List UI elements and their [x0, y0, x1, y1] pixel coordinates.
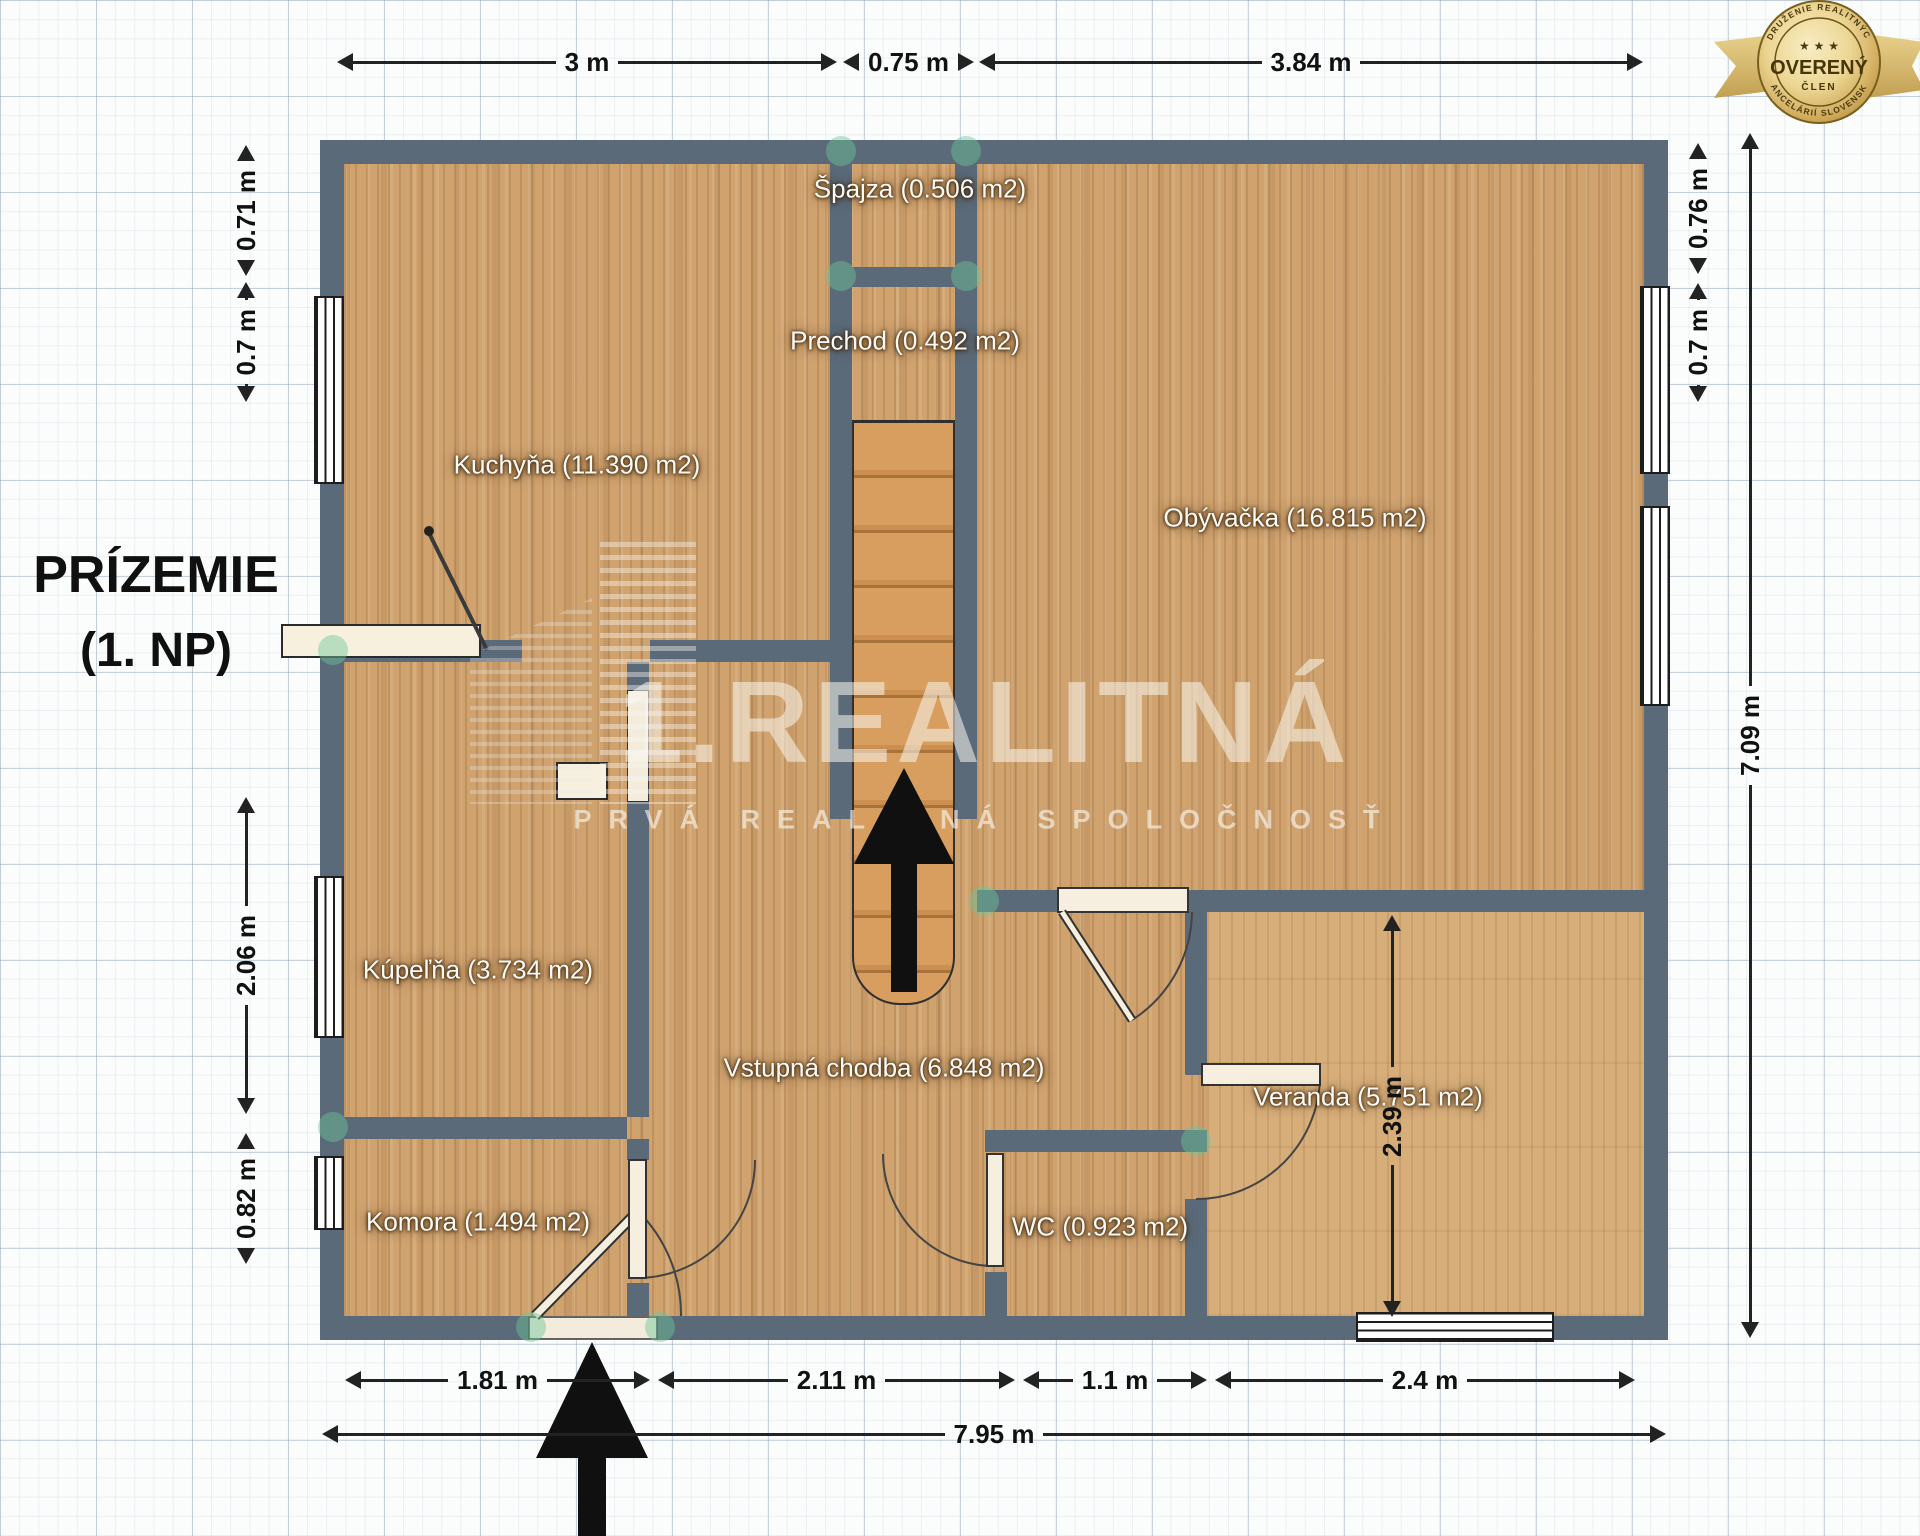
- junction-marker: [826, 261, 856, 291]
- junction-marker: [516, 1312, 546, 1342]
- dim-bottom-24m: 2.4 m: [1215, 1362, 1635, 1398]
- room-label-vstupna-chodba: Vstupná chodba (6.848 m2): [724, 1053, 1045, 1084]
- dim-right-239m: 2.39 m: [1372, 915, 1412, 1317]
- dim-bottom-181m: 1.81 m: [345, 1362, 650, 1398]
- junction-marker: [1181, 1126, 1211, 1156]
- junction-marker: [645, 1312, 675, 1342]
- dim-top-384m: 3.84 m: [979, 44, 1643, 80]
- junction-marker: [318, 1112, 348, 1142]
- komora-door-arc: [637, 1160, 755, 1278]
- stairs-direction-arrow: [891, 852, 917, 992]
- floor-title-line2: (1. NP): [22, 623, 290, 678]
- entrance-threshold: [529, 1317, 657, 1339]
- kitchen-door-hinge: [424, 526, 434, 536]
- badge-title: OVERENÝ: [1770, 55, 1868, 79]
- junction-marker: [951, 136, 981, 166]
- entrance-arrow: [578, 1452, 606, 1536]
- room-label-obyvacka: Obývačka (16.815 m2): [1163, 503, 1426, 534]
- dim-top-3m: 3 m: [337, 44, 837, 80]
- room-label-komora: Komora (1.494 m2): [366, 1207, 590, 1238]
- dim-left-07m: 0.7 m: [226, 282, 266, 402]
- wc-door-leaf: [987, 1154, 1003, 1266]
- junction-marker: [951, 261, 981, 291]
- livingroom-door-arc: [1132, 912, 1192, 1020]
- floor-plan-canvas: 1.REALITNÁ PRVÁ REALITNÁ SPOLOČNOSŤ Kuch…: [0, 0, 1920, 1536]
- room-label-prechod: Prechod (0.492 m2): [790, 326, 1020, 357]
- komora-door-leaf: [629, 1160, 646, 1278]
- dim-left-206m: 2.06 m: [226, 797, 266, 1114]
- room-label-kupelna: Kúpeľňa (3.734 m2): [363, 955, 593, 986]
- dim-bottom-11m: 1.1 m: [1023, 1362, 1207, 1398]
- room-label-kuchyna: Kuchyňa (11.390 m2): [454, 450, 701, 481]
- dim-top-075m: 0.75 m: [843, 44, 973, 80]
- floor-title: PRÍZEMIE (1. NP): [22, 545, 290, 678]
- watermark-brand: 1.REALITNÁ: [618, 655, 1351, 789]
- dim-bottom-795m: 7.95 m: [322, 1416, 1666, 1452]
- wc-door-arc: [883, 1154, 995, 1266]
- dim-bottom-211m: 2.11 m: [658, 1362, 1015, 1398]
- livingroom-door-frame: [1058, 888, 1188, 912]
- floor-title-line1: PRÍZEMIE: [22, 545, 290, 605]
- verified-member-badge: ZDRUŽENIE REALITNÝCH KANCELÁRIÍ SLOVENSK…: [1692, 0, 1920, 166]
- room-label-spajza: Špajza (0.506 m2): [814, 174, 1026, 205]
- watermark-tagline: PRVÁ REALITNÁ SPOLOČNOSŤ: [573, 805, 1396, 836]
- junction-marker: [969, 886, 999, 916]
- stairs-direction-arrow-head: [854, 768, 954, 864]
- junction-marker: [318, 635, 348, 665]
- dim-right-07m: 0.7 m: [1678, 283, 1718, 402]
- dim-right-709m: 7.09 m: [1730, 133, 1770, 1338]
- dim-left-071m: 0.71 m: [226, 145, 266, 270]
- badge-stars: ★ ★ ★: [1799, 39, 1839, 53]
- junction-marker: [826, 136, 856, 166]
- room-label-wc: WC (0.923 m2): [1012, 1212, 1188, 1243]
- dim-left-082m: 0.82 m: [226, 1133, 266, 1257]
- room-label-veranda: Veranda (5.751 m2): [1253, 1082, 1483, 1113]
- badge-subtitle: ČLEN: [1801, 80, 1836, 93]
